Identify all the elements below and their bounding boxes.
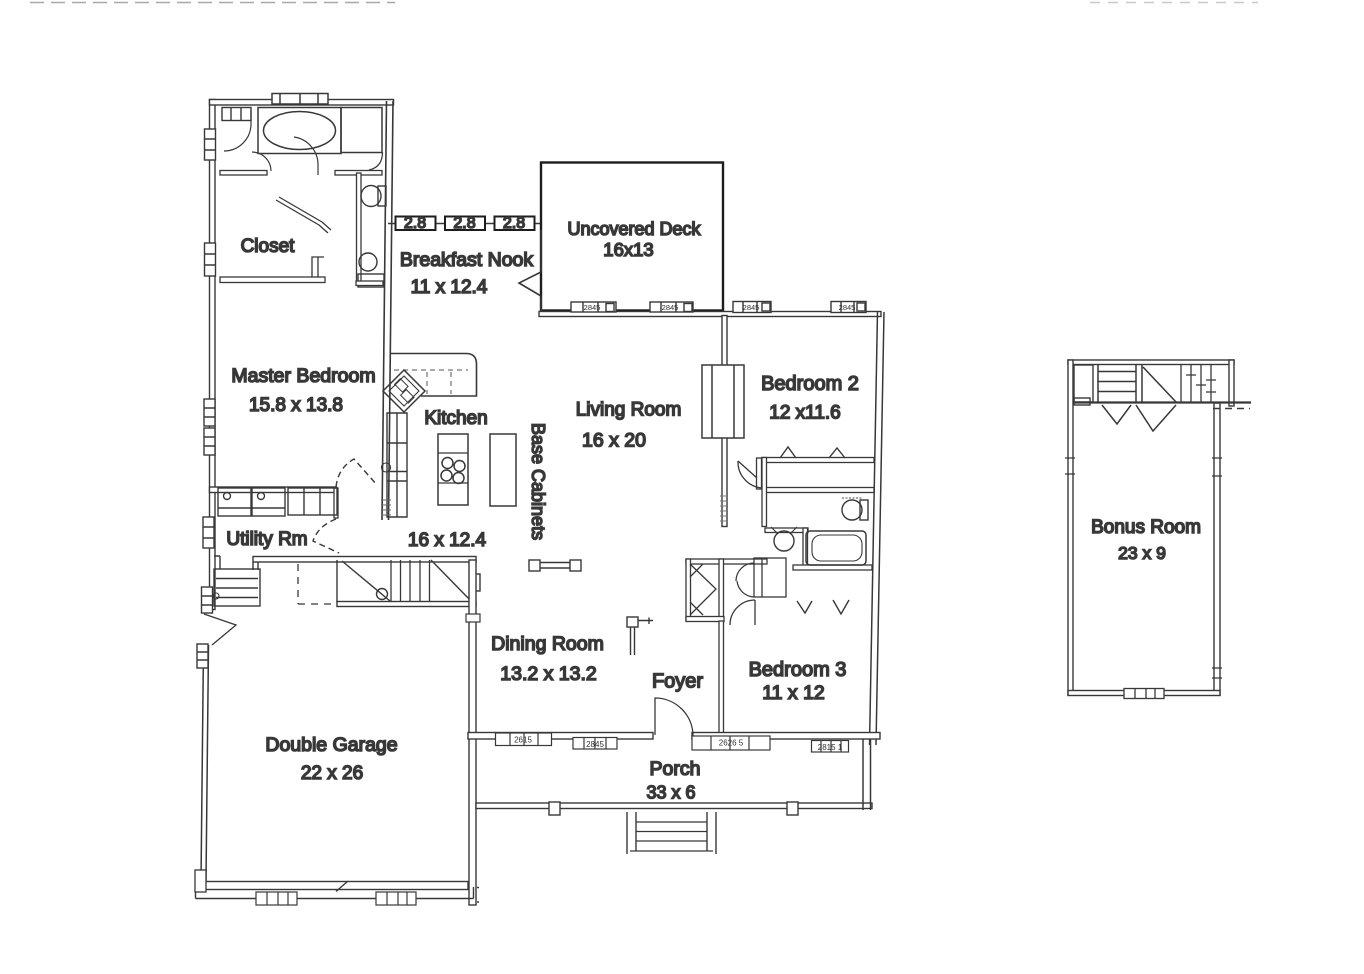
svg-text:Bedroom 2: Bedroom 2 <box>761 373 859 395</box>
svg-text:22 x 26: 22 x 26 <box>301 763 363 784</box>
svg-text:Living Room: Living Room <box>576 400 682 421</box>
svg-text:Breakfast Nook: Breakfast Nook <box>400 249 534 271</box>
svg-text:13.2 x 13.2: 13.2 x 13.2 <box>500 663 597 685</box>
svg-text:15.8 x 13.8: 15.8 x 13.8 <box>249 395 343 416</box>
svg-text:Uncovered Deck: Uncovered Deck <box>567 219 701 239</box>
svg-text:2815 1: 2815 1 <box>818 743 843 752</box>
svg-text:11 x 12.4: 11 x 12.4 <box>411 277 488 298</box>
svg-text:11 x 12: 11 x 12 <box>762 682 825 704</box>
svg-text:Master Bedroom: Master Bedroom <box>231 365 375 387</box>
svg-text:Double Garage: Double Garage <box>265 734 397 756</box>
svg-text:2845: 2845 <box>586 740 604 749</box>
svg-text:2.8: 2.8 <box>404 215 426 232</box>
svg-text:33 x 6: 33 x 6 <box>646 783 695 803</box>
svg-text:12 x11.6: 12 x11.6 <box>769 403 840 424</box>
svg-text:2845: 2845 <box>584 303 601 312</box>
svg-text:16 x 12.4: 16 x 12.4 <box>408 530 487 551</box>
svg-text:2845: 2845 <box>839 303 856 312</box>
svg-text:Base Cabinets: Base Cabinets <box>528 423 548 540</box>
svg-text:Foyer: Foyer <box>652 671 703 693</box>
svg-text:Bedroom 3: Bedroom 3 <box>749 659 847 681</box>
svg-text:2615: 2615 <box>514 736 532 745</box>
svg-text:Closet: Closet <box>241 236 296 257</box>
svg-text:Bonus Room: Bonus Room <box>1091 517 1201 538</box>
svg-text:Utility Rm: Utility Rm <box>226 529 307 550</box>
svg-text:2845: 2845 <box>743 303 760 312</box>
svg-text:Porch: Porch <box>650 758 701 780</box>
svg-text:16 x 20: 16 x 20 <box>582 430 646 452</box>
svg-text:2.8: 2.8 <box>503 215 525 232</box>
svg-text:23 x 9: 23 x 9 <box>1118 543 1166 563</box>
svg-text:Dining Room: Dining Room <box>491 633 604 655</box>
svg-text:2.8: 2.8 <box>453 215 475 232</box>
svg-text:2626 5: 2626 5 <box>719 739 744 748</box>
svg-text:16x13: 16x13 <box>603 239 653 260</box>
svg-text:2845: 2845 <box>662 303 679 312</box>
svg-text:Kitchen: Kitchen <box>424 408 487 429</box>
